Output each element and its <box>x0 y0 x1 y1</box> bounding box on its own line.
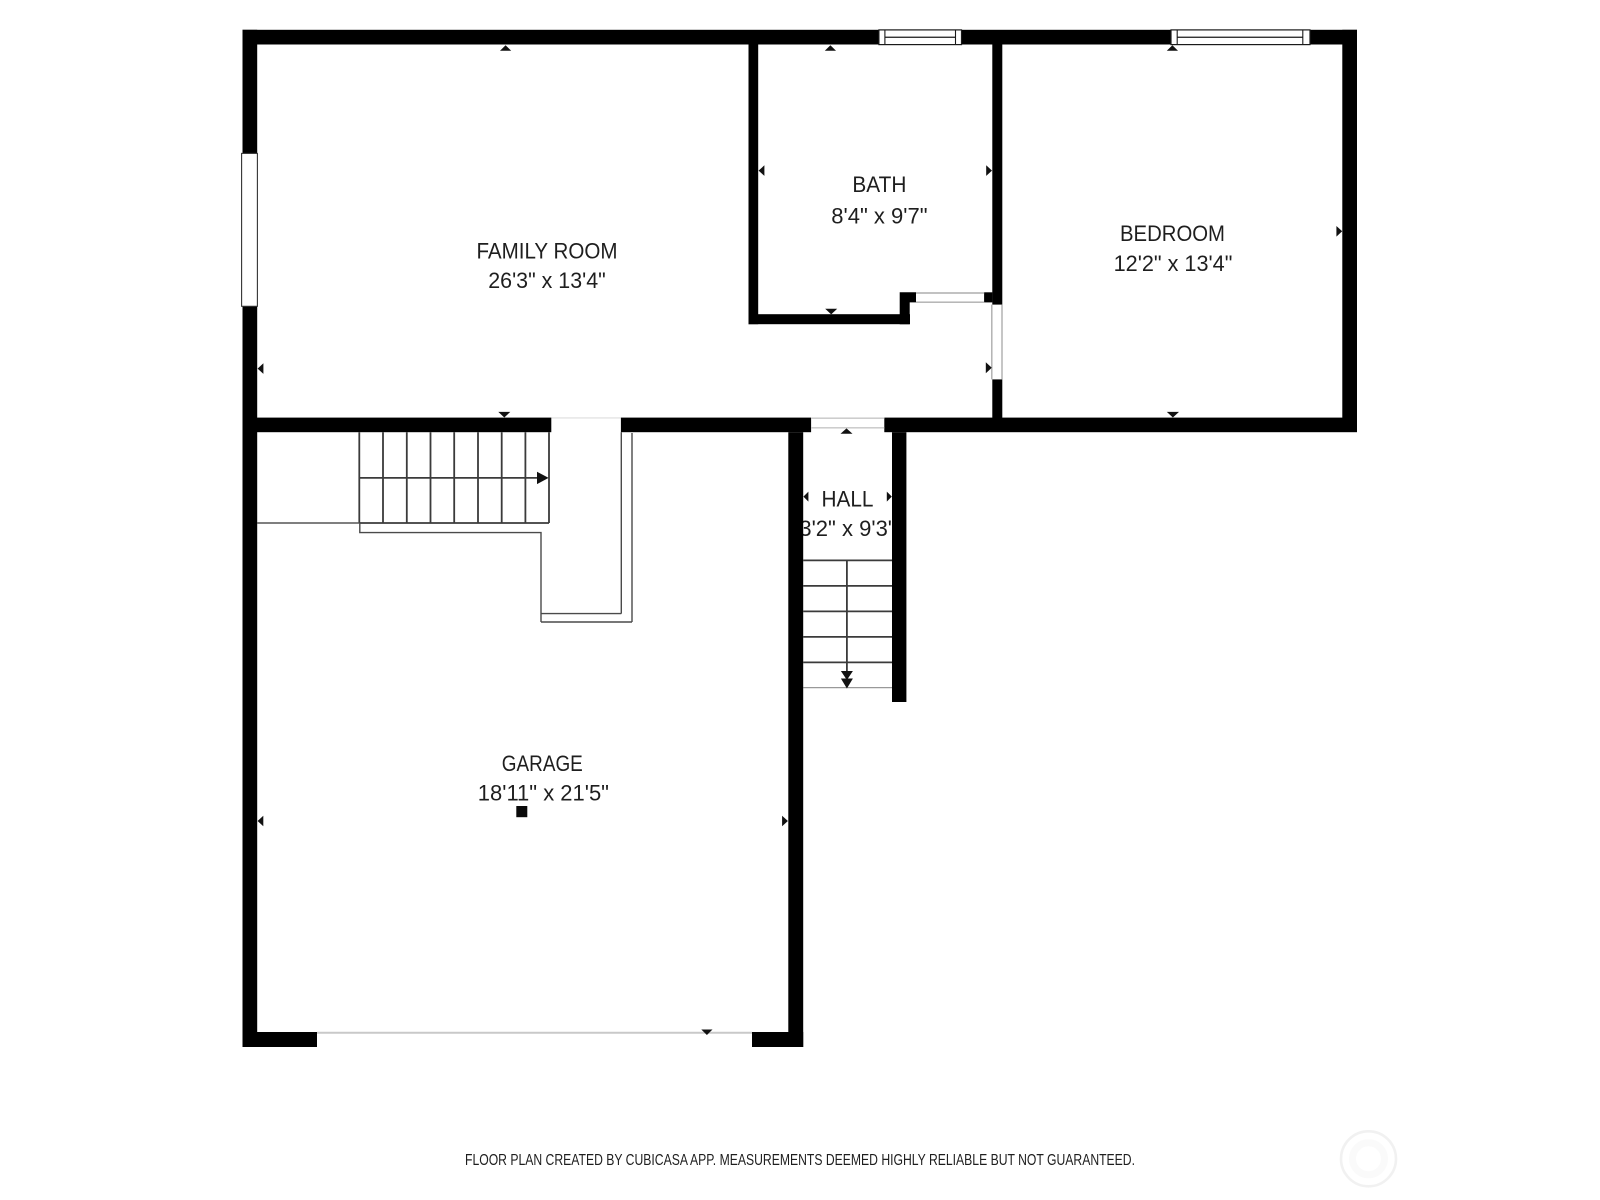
svg-text:26'3" x 13'4": 26'3" x 13'4" <box>488 268 606 293</box>
svg-text:8'4" x 9'7": 8'4" x 9'7" <box>831 204 927 229</box>
svg-text:BATH: BATH <box>852 172 906 197</box>
svg-text:12'2" x 13'4": 12'2" x 13'4" <box>1114 251 1233 276</box>
svg-text:FLOOR PLAN CREATED BY CUBICASA: FLOOR PLAN CREATED BY CUBICASA APP. MEAS… <box>465 1152 1135 1169</box>
svg-text:GARAGE: GARAGE <box>502 751 583 776</box>
svg-text:3'2" x 9'3": 3'2" x 9'3" <box>799 516 895 541</box>
svg-text:FAMILY ROOM: FAMILY ROOM <box>477 239 618 264</box>
svg-text:HALL: HALL <box>822 487 874 512</box>
svg-text:18'11" x 21'5": 18'11" x 21'5" <box>478 780 609 805</box>
svg-text:BEDROOM: BEDROOM <box>1120 221 1225 246</box>
